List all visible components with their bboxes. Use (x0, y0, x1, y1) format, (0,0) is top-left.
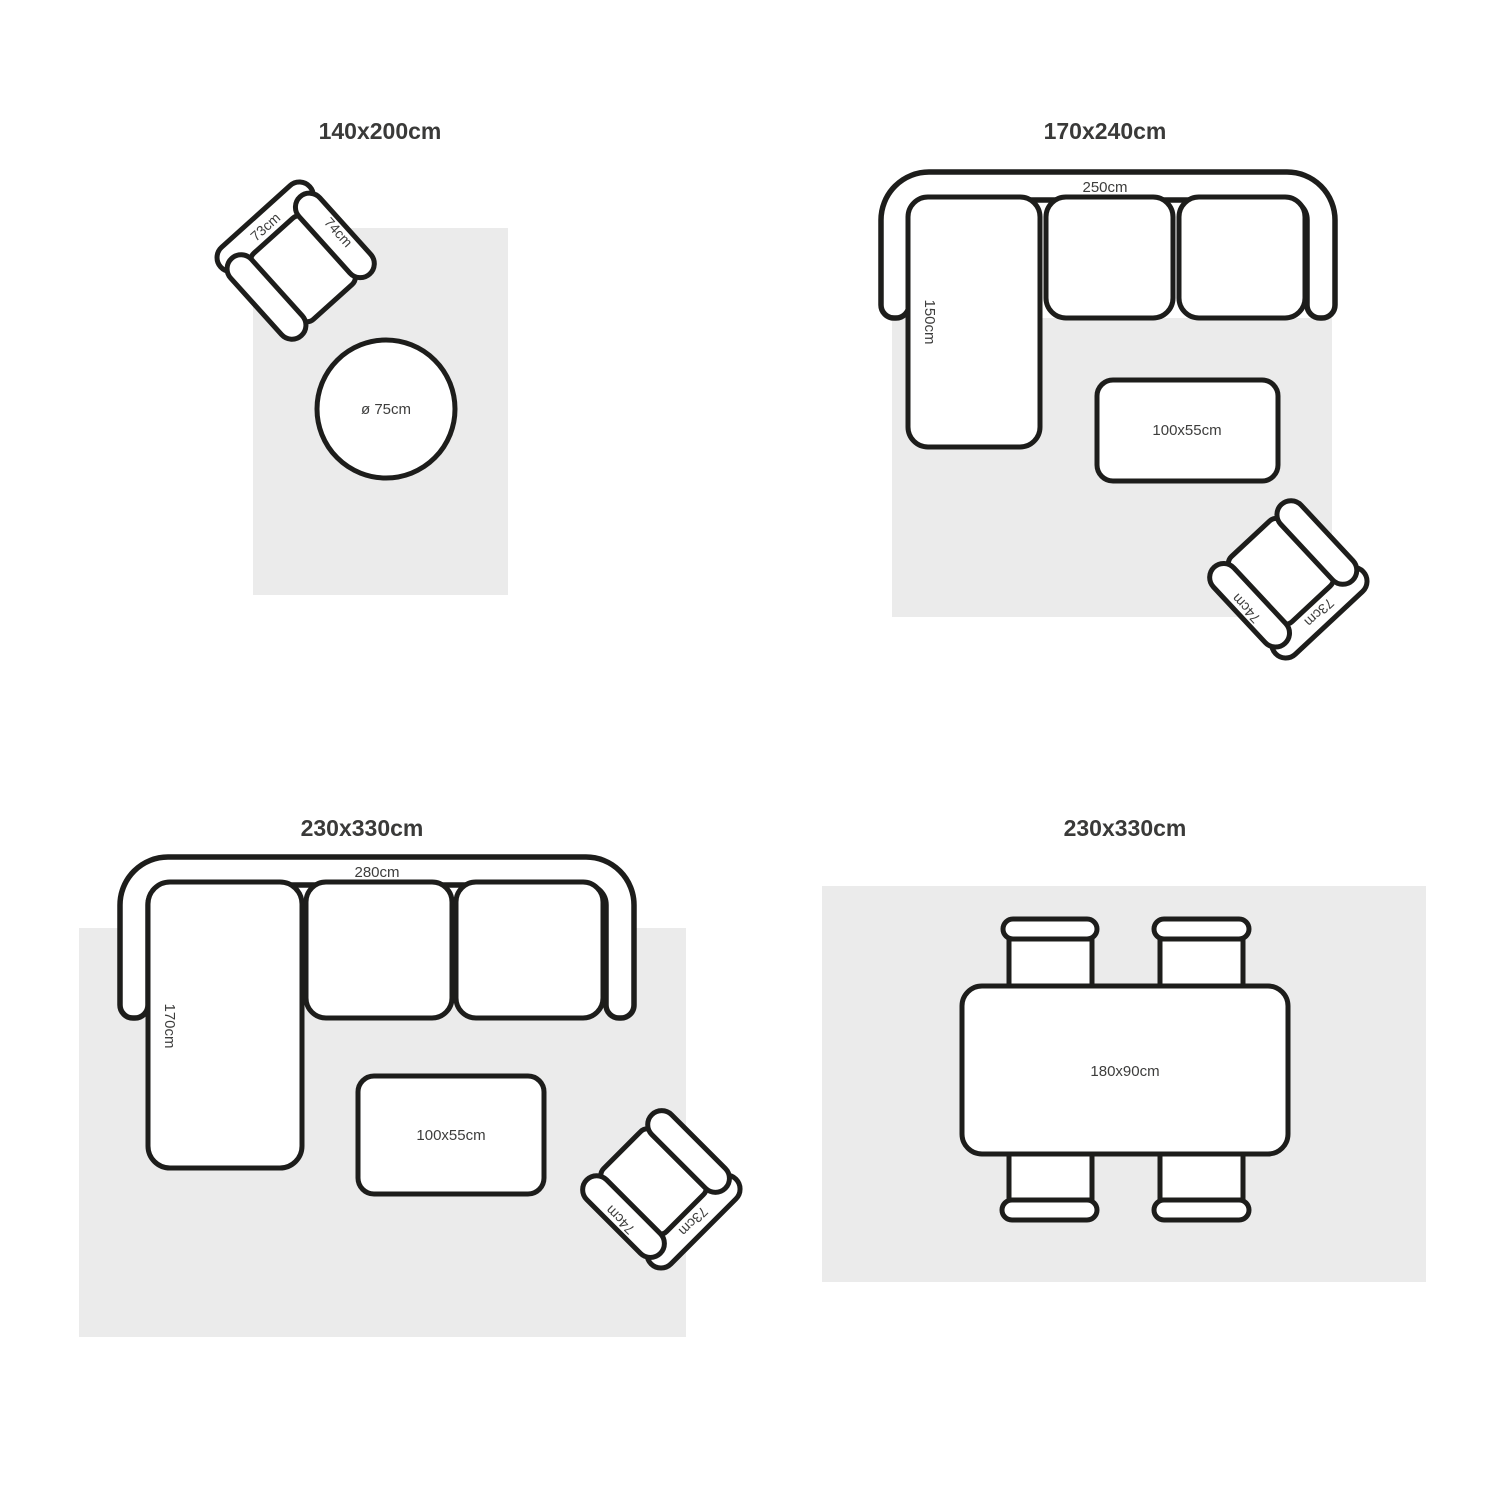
round-table-label: ø 75cm (361, 401, 411, 418)
panel-title: 140x200cm (319, 118, 442, 144)
diagram-canvas: 140x200cm 73cm 74cm ø 75cm 170x240cm 250… (0, 0, 1500, 1500)
dining-chair-back (1002, 1200, 1097, 1220)
panel-title: 230x330cm (1064, 815, 1187, 841)
sofa-depth-label: 170cm (161, 1003, 178, 1048)
sofa-width-label: 280cm (354, 864, 399, 881)
panel-title: 170x240cm (1044, 118, 1167, 144)
sofa-cushion (1179, 197, 1305, 318)
dining-chair-seat (1009, 1150, 1092, 1200)
dining-chair-top-right (1154, 919, 1249, 991)
dining-chair-back (1154, 919, 1249, 939)
dining-chair-back (1003, 919, 1097, 939)
dining-chair-bottom-left (1002, 1150, 1097, 1220)
panel-230x330-dining: 230x330cm 180x90cm (822, 815, 1426, 1282)
coffee-table-label: 100x55cm (1152, 422, 1221, 439)
dining-table-label: 180x90cm (1090, 1063, 1159, 1080)
panel-140x200: 140x200cm 73cm 74cm ø 75cm (211, 118, 508, 595)
sofa-width-label: 250cm (1082, 179, 1127, 196)
sofa-cushion (1046, 197, 1173, 318)
dining-chair-seat (1160, 1150, 1243, 1200)
sofa-depth-label: 150cm (921, 299, 938, 344)
sofa-cushion (456, 882, 603, 1018)
dining-chair-seat (1160, 939, 1243, 991)
dining-chair-back (1154, 1200, 1249, 1220)
dining-chair-top-left (1003, 919, 1097, 991)
coffee-table-label: 100x55cm (416, 1127, 485, 1144)
dining-chair-bottom-right (1154, 1150, 1249, 1220)
dining-chair-seat (1009, 939, 1092, 991)
panel-title: 230x330cm (301, 815, 424, 841)
panel-230x330-sofa: 230x330cm 280cm 170cm 100x55cm 73cm 74cm (79, 815, 746, 1337)
rug-size-guide: 140x200cm 73cm 74cm ø 75cm 170x240cm 250… (0, 0, 1500, 1500)
panel-170x240: 170x240cm 250cm 150cm 100x55cm 73cm 74cm (881, 118, 1373, 664)
sofa-cushion (306, 882, 452, 1018)
